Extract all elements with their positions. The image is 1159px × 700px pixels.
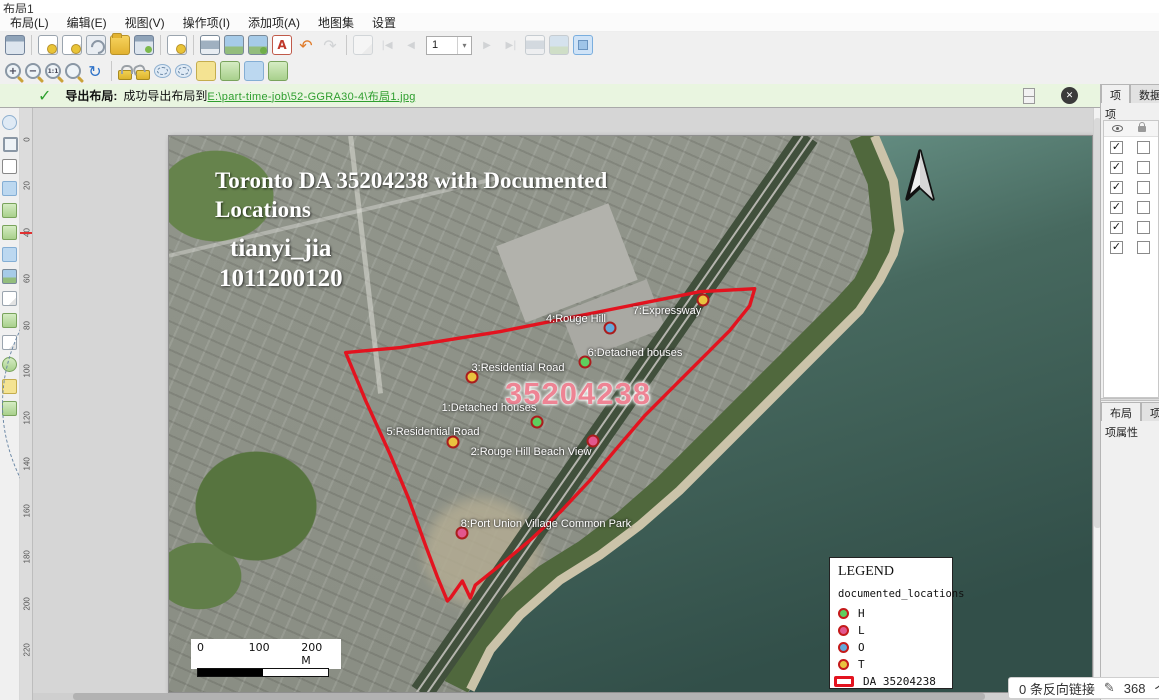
item-lock-checkbox[interactable] (1137, 181, 1150, 194)
scale-bar-segments (197, 668, 329, 677)
panel-top-tabs: 项 数据 (1101, 84, 1159, 103)
item-row: ✓ (1104, 237, 1158, 257)
north-arrow (904, 148, 936, 204)
item-toolbox (0, 108, 20, 700)
item-visibility-checkbox[interactable]: ✓ (1110, 161, 1123, 174)
legend-item-o: O (838, 639, 944, 656)
align-items-icon[interactable] (220, 61, 240, 81)
main-area: ✓ 导出布局: 成功导出布局到 E:\part-time-job\52-GGRA… (0, 84, 1159, 700)
scale-tick-200: 200 M (301, 641, 335, 667)
legend-title: LEGEND (838, 564, 944, 580)
ruler-mark: 20 (23, 180, 32, 192)
ruler-mark: 80 (23, 320, 32, 332)
horizontal-scrollbar[interactable] (33, 693, 1093, 700)
marker-label-7: 7:Expressway (633, 305, 701, 317)
atlas-last-icon[interactable]: ▶| (501, 35, 521, 55)
atlas-page-spinbox[interactable]: 1 ▾ (426, 36, 472, 55)
ruler-mark: 160 (23, 506, 32, 518)
menu-atlas[interactable]: 地图集 (310, 13, 362, 32)
open-folder-icon[interactable] (110, 35, 130, 55)
scale-tick-100: 100 (249, 641, 302, 667)
ruler-cursor-indicator (20, 232, 33, 234)
spinbox-dropdown-icon[interactable]: ▾ (457, 37, 471, 54)
layout-workspace: 0 20 40 60 80 100 120 140 160 180 200 22… (0, 108, 1100, 700)
legend-item-t: T (838, 656, 944, 673)
legend-symbol-l (838, 625, 849, 636)
menu-view[interactable]: 视图(V) (117, 13, 173, 32)
success-check-icon: ✓ (38, 86, 51, 106)
select-move-tool-icon[interactable] (2, 159, 17, 174)
scale-segment-white (263, 669, 328, 676)
marker-label-4: 4:Rouge Hill (546, 313, 606, 325)
ruler-mark: 140 (23, 459, 32, 471)
export-image-icon[interactable] (224, 35, 244, 55)
lock-column-lock-icon (1138, 126, 1146, 132)
separator (111, 61, 112, 81)
marker-label-2: 2:Rouge Hill Beach View (471, 446, 592, 458)
legend-symbol-da-boundary (834, 676, 854, 687)
item-row: ✓ (1104, 177, 1158, 197)
close-message-icon[interactable]: ✕ (1061, 87, 1078, 104)
layout-canvas[interactable]: Toronto DA 35204238 with Documented Loca… (33, 108, 1100, 700)
pan-tool-icon[interactable] (2, 115, 17, 130)
item-row: ✓ (1104, 137, 1158, 157)
ruler-mark: 0 (23, 134, 32, 146)
marker-label-3: 3:Residential Road (472, 362, 565, 374)
panel-bottom-tabs: 布局 项属性 (1101, 402, 1159, 421)
item-lock-checkbox[interactable] (1137, 141, 1150, 154)
atlas-export-icon[interactable] (549, 35, 569, 55)
tab-item-properties[interactable]: 项属性 (1141, 402, 1159, 421)
deselect-items-icon[interactable] (175, 64, 192, 78)
vertical-scrollbar[interactable] (1093, 108, 1100, 693)
legend-symbol-h (838, 608, 849, 619)
menu-add-item[interactable]: 添加项(A) (240, 13, 308, 32)
layout-manager-icon[interactable] (86, 35, 106, 55)
backlinks-count: 0 条反向链接 (1019, 679, 1095, 698)
add-legend-icon[interactable] (2, 313, 17, 328)
tab-layout[interactable]: 布局 (1101, 402, 1141, 421)
marker-label-5: 5:Residential Road (387, 426, 480, 438)
toolbar-main: A ↶ ↷ |◀ ◀ 1 ▾ ▶ ▶| (0, 32, 1159, 58)
message-text: 成功导出布局到 (123, 87, 207, 104)
item-visibility-checkbox[interactable]: ✓ (1110, 141, 1123, 154)
legend-item-da: DA 35204238 (838, 673, 944, 690)
legend-item-l: L (838, 622, 944, 639)
atlas-toggle-icon[interactable] (353, 35, 373, 55)
legend-symbol-o (838, 642, 849, 653)
select-items-icon[interactable] (154, 64, 171, 78)
scale-segment-black (198, 669, 263, 676)
ruler-mark: 180 (23, 552, 32, 564)
atlas-print-icon[interactable] (525, 35, 545, 55)
add-3d-map-icon[interactable] (2, 247, 17, 262)
marker-dot-1 (531, 416, 544, 429)
item-lock-checkbox[interactable] (1137, 221, 1150, 234)
lock-items-icon[interactable] (118, 70, 132, 80)
marker-label-8: 8:Port Union Village Common Park (461, 518, 631, 530)
separator (346, 35, 347, 55)
map-author: tianyi_jia (230, 235, 331, 263)
map-title-line1: Toronto DA 35204238 with Documented (215, 168, 607, 194)
ruler-mark: 120 (23, 413, 32, 425)
marker-label-6: 6:Detached houses (588, 347, 683, 359)
move-content-tool-icon[interactable] (2, 181, 17, 196)
zoom-tool-icon[interactable] (3, 137, 18, 152)
menu-bar: 布局(L) 编辑(E) 视图(V) 操作项(I) 添加项(A) 地图集 设置 (0, 13, 1159, 32)
atlas-prev-icon[interactable]: ◀ (401, 35, 421, 55)
item-visibility-checkbox[interactable]: ✓ (1110, 221, 1123, 234)
panel-splitter[interactable] (1101, 398, 1159, 401)
window-titlebar: 布局1 (0, 0, 1159, 13)
exported-file-link[interactable]: E:\part-time-job\52-GGRA30-4\布局1.jpg (207, 88, 415, 104)
ruler-mark: 100 (23, 366, 32, 378)
zoom-full-icon[interactable] (65, 63, 81, 79)
vertical-ruler: 0 20 40 60 80 100 120 140 160 180 200 22… (20, 108, 33, 700)
scale-tick-0: 0 (197, 641, 249, 667)
redo-icon[interactable]: ↷ (320, 35, 340, 55)
items-panel: 项 数据 项 ✓ ✓ ✓ (1100, 84, 1159, 700)
atlas-preview-icon[interactable] (573, 35, 593, 55)
tab-data[interactable]: 数据 (1130, 84, 1159, 103)
export-pdf-icon[interactable]: A (272, 35, 292, 55)
menu-settings[interactable]: 设置 (364, 13, 404, 32)
char-count: 368 (1124, 681, 1146, 696)
resize-items-icon[interactable] (268, 61, 288, 81)
item-row: ✓ (1104, 197, 1158, 217)
horizontal-scrollbar-thumb[interactable] (73, 693, 985, 700)
item-visibility-checkbox[interactable]: ✓ (1110, 201, 1123, 214)
duplicate-layout-icon[interactable] (62, 35, 82, 55)
window-title: 布局1 (0, 0, 34, 13)
tab-items[interactable]: 项 (1101, 84, 1130, 103)
unlock-items-icon[interactable] (136, 70, 150, 80)
menu-items[interactable]: 操作项(I) (175, 13, 238, 32)
menu-layout[interactable]: 布局(L) (2, 13, 57, 32)
zoom-in-icon[interactable]: + (5, 63, 21, 79)
map-legend: LEGEND documented_locations H L (829, 557, 953, 689)
left-column: ✓ 导出布局: 成功导出布局到 E:\part-time-job\52-GGRA… (0, 84, 1100, 700)
add-map-icon[interactable] (2, 225, 17, 240)
message-stack-icon[interactable] (1023, 88, 1035, 104)
refresh-view-icon[interactable]: ↻ (85, 61, 105, 81)
legend-item-h: H (838, 605, 944, 622)
map-title-line2: Locations (215, 197, 311, 223)
qgis-layout-window: 布局1 布局(L) 编辑(E) 视图(V) 操作项(I) 添加项(A) 地图集 … (0, 0, 1159, 700)
undo-icon[interactable]: ↶ (296, 35, 316, 55)
item-lock-checkbox[interactable] (1137, 201, 1150, 214)
pencil-icon: ✎ (1104, 680, 1115, 696)
message-title: 导出布局: (65, 87, 117, 104)
map-page[interactable]: Toronto DA 35204238 with Documented Loca… (168, 135, 1093, 693)
item-visibility-checkbox[interactable]: ✓ (1110, 241, 1123, 254)
visibility-column-eye-icon (1112, 125, 1123, 132)
map-student-id: 1011200120 (219, 265, 343, 293)
zoom-actual-icon[interactable]: 1:1 (45, 63, 61, 79)
item-lock-checkbox[interactable] (1137, 241, 1150, 254)
ruler-mark: 220 (23, 645, 32, 657)
char-count-suffix: 个 (1154, 679, 1159, 698)
new-report-icon[interactable] (167, 35, 187, 55)
ruler-mark: 200 (23, 599, 32, 611)
menu-edit[interactable]: 编辑(E) (59, 13, 115, 32)
atlas-first-icon[interactable]: |◀ (377, 35, 397, 55)
separator (31, 35, 32, 55)
new-layout-icon[interactable] (38, 35, 58, 55)
separator (160, 35, 161, 55)
raise-items-icon[interactable] (196, 61, 216, 81)
edit-nodes-tool-icon[interactable] (2, 203, 17, 218)
add-label-icon[interactable] (2, 291, 17, 306)
separator (193, 35, 194, 55)
add-picture-icon[interactable] (2, 269, 17, 284)
save-layout-icon[interactable] (134, 35, 154, 55)
item-properties-title: 项属性 (1101, 422, 1142, 442)
scale-bar: 0 100 200 M (191, 639, 341, 669)
export-message-bar: ✓ 导出布局: 成功导出布局到 E:\part-time-job\52-GGRA… (0, 84, 1100, 108)
item-lock-checkbox[interactable] (1137, 161, 1150, 174)
legend-symbol-t (838, 659, 849, 670)
distribute-items-icon[interactable] (244, 61, 264, 81)
atlas-page-value[interactable]: 1 (427, 39, 457, 51)
atlas-next-icon[interactable]: ▶ (477, 35, 497, 55)
message-bar-controls: ✕ (1023, 87, 1092, 104)
item-visibility-checkbox[interactable]: ✓ (1110, 181, 1123, 194)
zoom-out-icon[interactable]: − (25, 63, 41, 79)
lake-water (468, 136, 1092, 693)
status-overlay: 0 条反向链接 ✎ 368 个 (1008, 677, 1159, 699)
item-row: ✓ (1104, 217, 1158, 237)
marker-label-1: 1:Detached houses (442, 402, 537, 414)
save-project-icon[interactable] (5, 35, 25, 55)
toolbar-navigation: + − 1:1 ↻ (0, 58, 1159, 84)
item-row: ✓ (1104, 157, 1158, 177)
items-list: ✓ ✓ ✓ ✓ ✓ (1103, 120, 1159, 398)
export-svg-icon[interactable] (248, 35, 268, 55)
ruler-mark: 60 (23, 273, 32, 285)
legend-layer-name: documented_locations (838, 588, 944, 600)
print-icon[interactable] (200, 35, 220, 55)
items-list-header (1104, 121, 1158, 137)
